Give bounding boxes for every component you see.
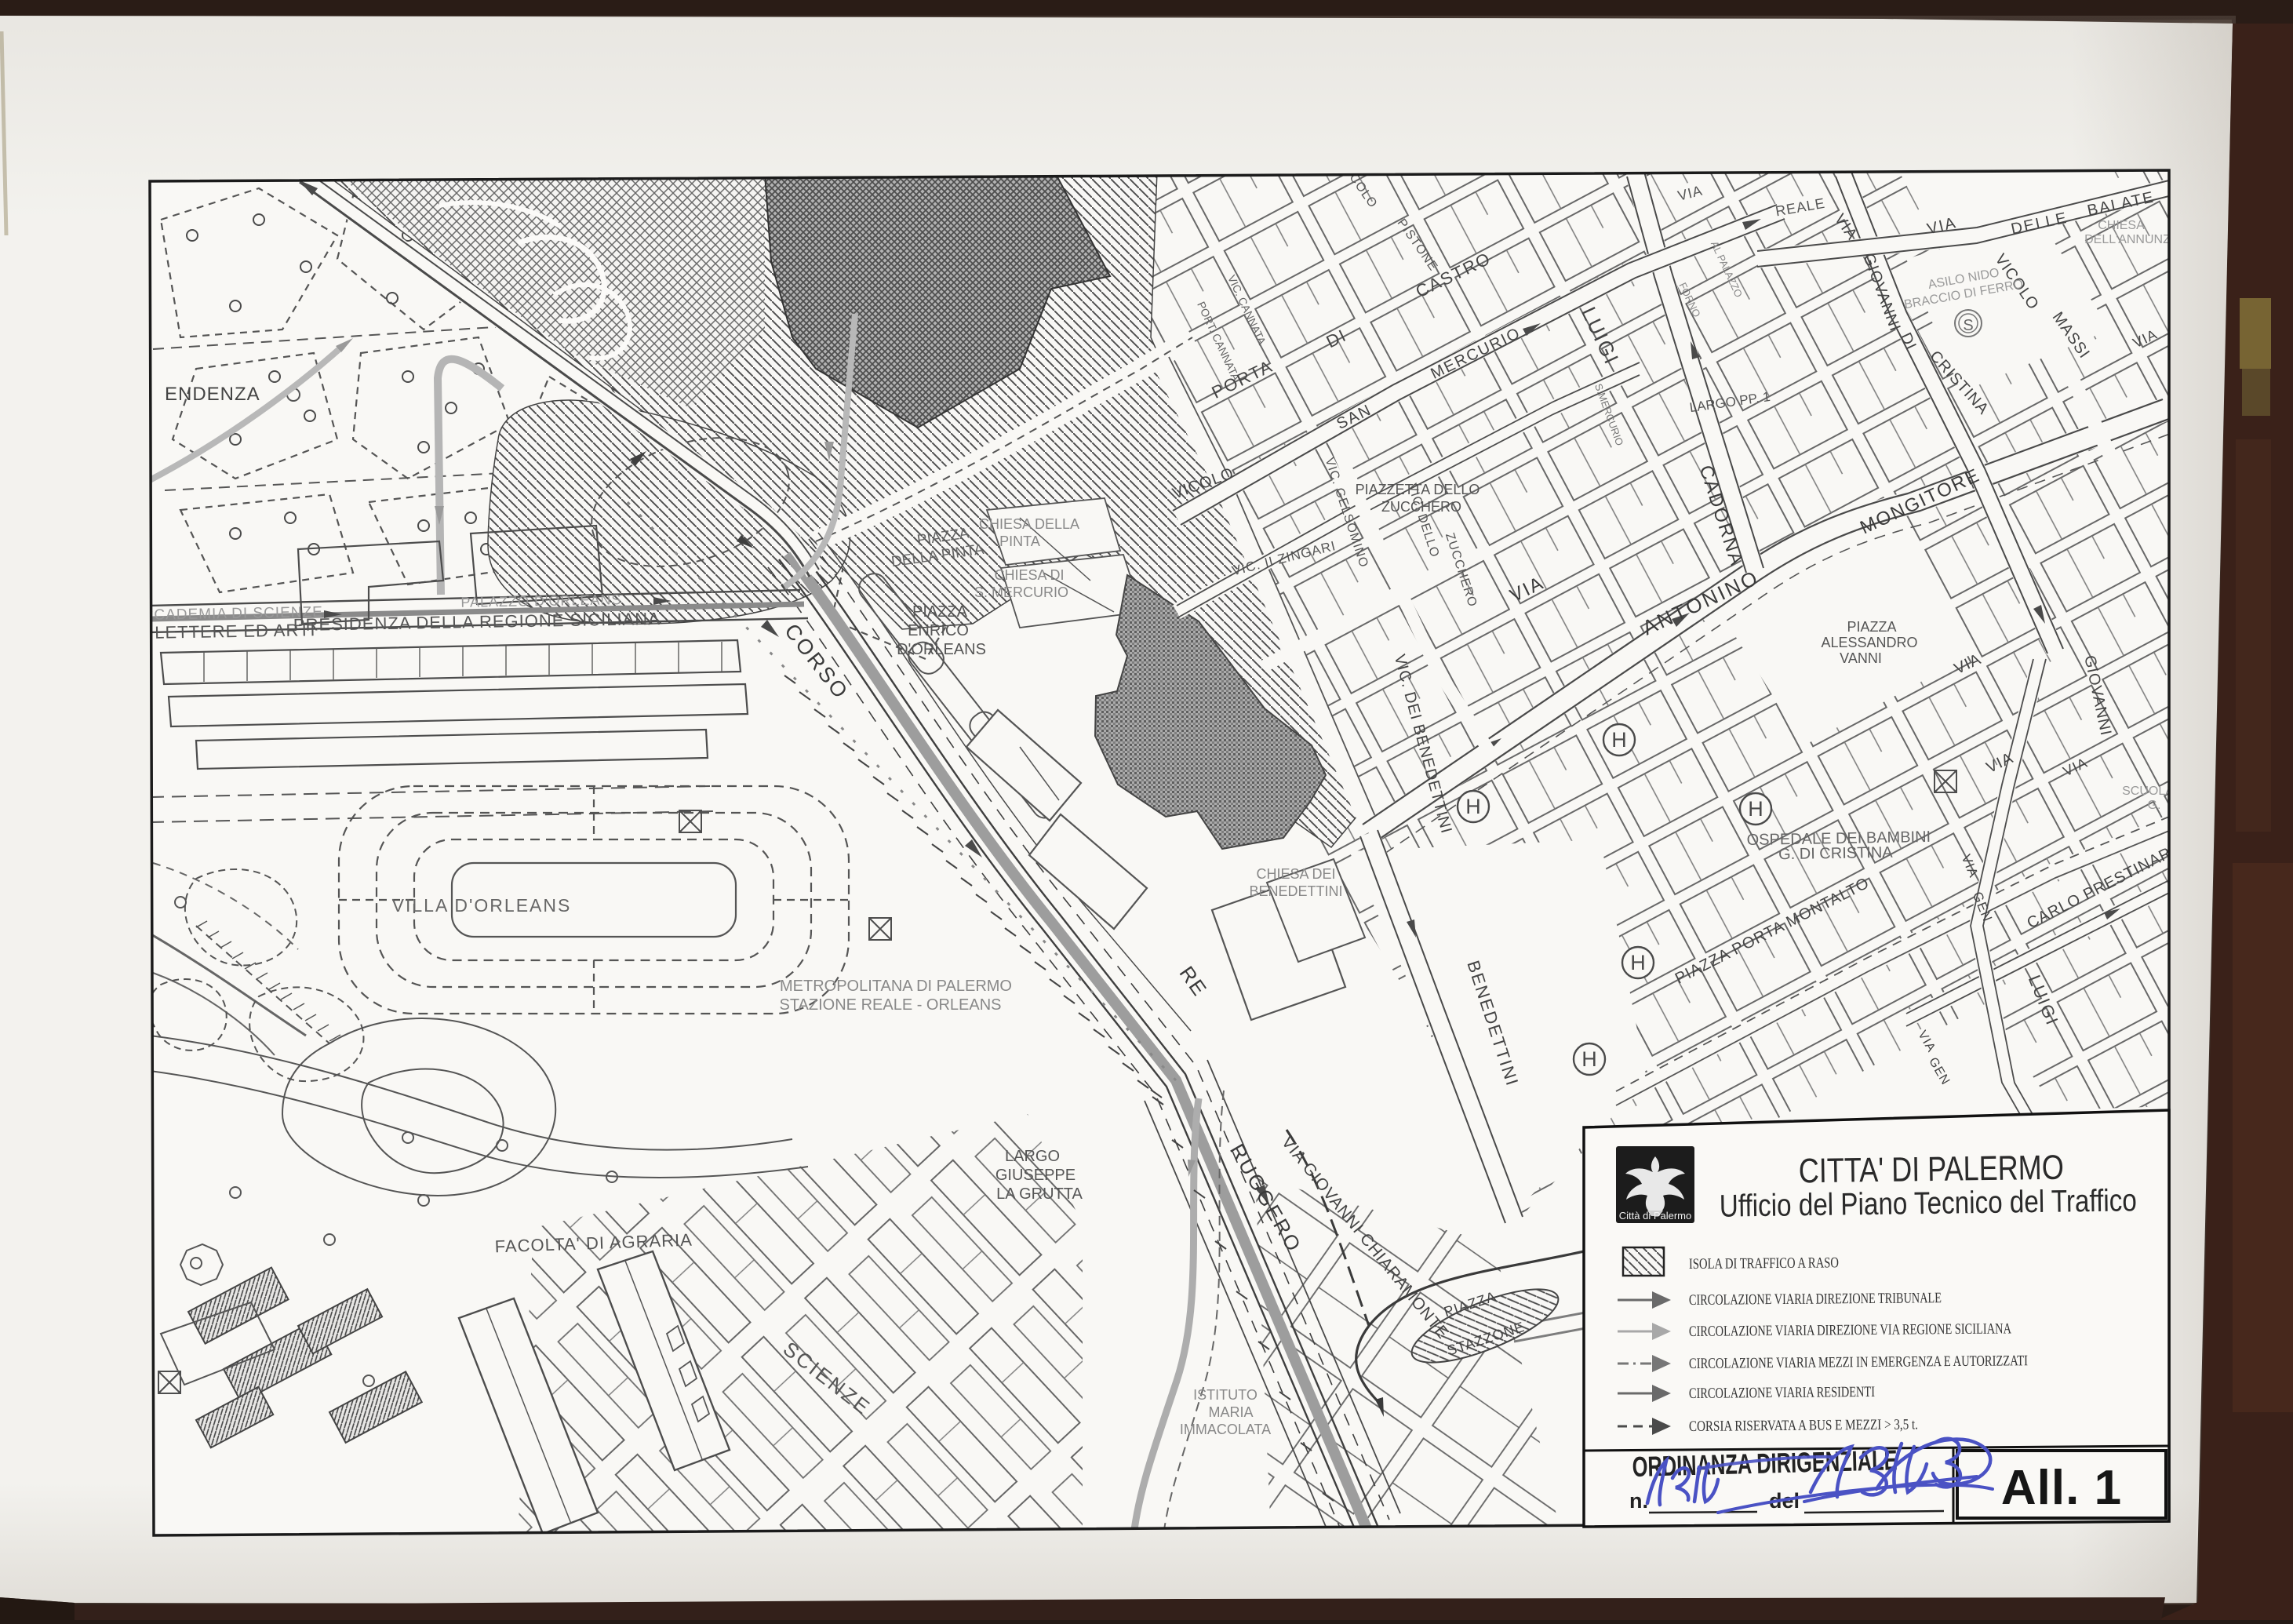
svg-text:PINTA: PINTA <box>999 533 1040 549</box>
svg-text:Città di Palermo: Città di Palermo <box>1619 1210 1691 1222</box>
svg-text:ISTITUTO: ISTITUTO <box>1193 1387 1258 1403</box>
svg-text:SCUOLA: SCUOLA <box>2122 785 2174 798</box>
svg-text:G. DI CRISTINA: G. DI CRISTINA <box>1778 844 1894 864</box>
svg-text:ENRICO: ENRICO <box>908 622 969 639</box>
svg-text:CORSIA RISERVATA A BUS E MEZZ: CORSIA RISERVATA A BUS E MEZZI > 3,5 t. <box>1689 1416 1918 1435</box>
svg-text:GIUSEPPE: GIUSEPPE <box>995 1167 1076 1184</box>
svg-text:ALESSANDRO: ALESSANDRO <box>1821 635 1917 650</box>
svg-text:CHIESA DELLA: CHIESA DELLA <box>979 516 1079 532</box>
svg-text:H: H <box>1611 728 1627 752</box>
svg-text:G.: G. <box>2148 799 2161 812</box>
svg-text:S. MERCURIO: S. MERCURIO <box>974 584 1068 600</box>
svg-text:CHIESA: CHIESA <box>2098 219 2145 232</box>
svg-text:ISOLA DI TRAFFICO A RASO: ISOLA DI TRAFFICO A RASO <box>1689 1254 1839 1273</box>
svg-text:CIRCOLAZIONE VIARIA DIREZIONE: CIRCOLAZIONE VIARIA DIREZIONE TRIBUNALE <box>1689 1290 1942 1309</box>
svg-text:LA GRUTTA: LA GRUTTA <box>996 1185 1083 1203</box>
svg-text:PIAZZETTA DELLO: PIAZZETTA DELLO <box>1356 482 1480 497</box>
svg-text:ZUCCHERO: ZUCCHERO <box>1381 499 1461 515</box>
svg-text:LETTERE ED ARTI: LETTERE ED ARTI <box>155 620 316 643</box>
svg-text:ENDENZA: ENDENZA <box>165 384 260 405</box>
svg-text:CITTA' DI PALERMO: CITTA' DI PALERMO <box>1798 1149 2064 1191</box>
svg-text:CHIESA DI: CHIESA DI <box>994 567 1064 583</box>
svg-text:S: S <box>1963 317 1973 334</box>
svg-text:Ufficio del Piano Tecnico del: Ufficio del Piano Tecnico del Traffico <box>1720 1183 2138 1223</box>
svg-text:D'ORLEANS: D'ORLEANS <box>897 641 986 658</box>
svg-text:All. 1: All. 1 <box>2001 1461 2122 1515</box>
svg-text:H: H <box>1748 797 1763 821</box>
svg-text:VILLA D'ORLEANS: VILLA D'ORLEANS <box>392 895 572 916</box>
svg-text:H: H <box>1581 1047 1597 1071</box>
svg-text:CIRCOLAZIONE VIARIA MEZZI IN: CIRCOLAZIONE VIARIA MEZZI IN EMERGENZA E… <box>1689 1353 2028 1372</box>
svg-text:PIAZZA: PIAZZA <box>912 603 968 621</box>
svg-text:H: H <box>1465 795 1481 818</box>
svg-text:LARGO: LARGO <box>1005 1148 1060 1165</box>
svg-text:DELL'ANNUNZ: DELL'ANNUNZ <box>2084 233 2171 246</box>
svg-text:MARIA: MARIA <box>1208 1404 1253 1420</box>
svg-text:IMMACOLATA: IMMACOLATA <box>1180 1422 1271 1437</box>
svg-text:H: H <box>1630 951 1646 974</box>
svg-text:METROPOLITANA DI PALERMO: METROPOLITANA DI PALERMO <box>780 978 1012 995</box>
svg-text:PIAZZA: PIAZZA <box>1847 619 1896 635</box>
svg-text:STAZIONE REALE - ORLEANS: STAZIONE REALE - ORLEANS <box>779 996 1001 1014</box>
svg-text:n.: n. <box>1629 1489 1648 1513</box>
svg-text:BENEDETTINI: BENEDETTINI <box>1249 883 1342 899</box>
svg-text:PALAZZO D'ORLEANS: PALAZZO D'ORLEANS <box>460 592 621 610</box>
svg-text:VANNI: VANNI <box>1840 650 1882 666</box>
svg-text:CHIESA DEI: CHIESA DEI <box>1256 866 1335 882</box>
svg-text:CIRCOLAZIONE VIARIA DIREZIONE: CIRCOLAZIONE VIARIA DIREZIONE VIA REGION… <box>1689 1320 2011 1340</box>
svg-text:CIRCOLAZIONE VIARIA RESIDENTI: CIRCOLAZIONE VIARIA RESIDENTI <box>1689 1384 1875 1402</box>
